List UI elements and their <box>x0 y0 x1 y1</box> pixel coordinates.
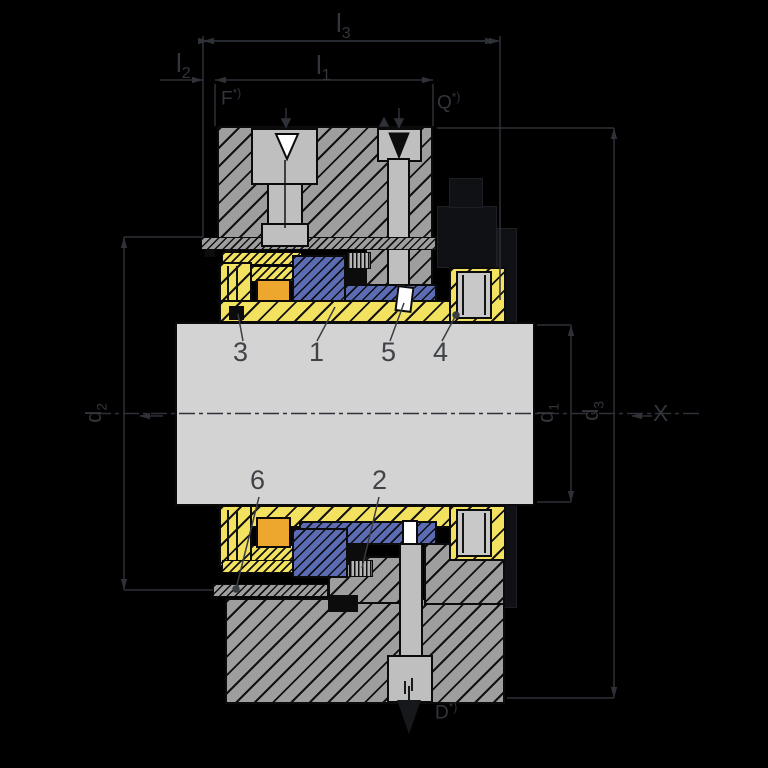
collar-screw-lower-l1 <box>462 513 464 553</box>
plate-line-lower-1 <box>227 510 229 562</box>
rotating-ring-lower <box>292 528 348 578</box>
dim-label-d3: d3 <box>580 401 606 421</box>
collar-screw-upper-l2 <box>484 275 486 315</box>
quench-port-flange <box>377 128 422 162</box>
part-label-2: 2 <box>372 467 387 494</box>
dim-label-l3: l3 <box>336 10 351 41</box>
drain-flange <box>387 655 433 703</box>
technical-drawing: l3 l2 l1 F*) Q*) D*) d2 d1 d3 X 3 1 5 4 … <box>0 0 768 768</box>
dim-label-l2: l2 <box>176 50 191 81</box>
housing-silhouette-upper-step <box>449 178 483 208</box>
spring-housing-cover-lower <box>222 560 302 573</box>
flow-arrows <box>282 108 403 127</box>
dim-label-l1: l1 <box>316 52 331 83</box>
set-screw-lower <box>349 560 373 577</box>
quench-port-tube <box>387 158 410 298</box>
flush-port-base <box>261 223 309 247</box>
flush-port-bore <box>251 128 318 185</box>
rotating-ring-upper <box>292 255 346 305</box>
wedge-upper <box>394 285 414 313</box>
part-label-6: 6 <box>250 467 265 494</box>
collar-screw-lower-l2 <box>484 513 486 553</box>
part-label-3: 3 <box>233 339 248 366</box>
gasket-step-lower <box>328 595 358 612</box>
housing-silhouette-upper <box>437 206 497 268</box>
view-label-x: X <box>653 402 668 425</box>
port-label-quench: Q*) <box>437 92 460 112</box>
oring-upper <box>229 306 244 320</box>
gland-gasket-lower <box>213 584 328 597</box>
spring-lower <box>256 517 291 548</box>
set-screw-upper <box>347 252 371 269</box>
dim-label-d2: d2 <box>83 403 109 423</box>
plate-line-lower-2 <box>236 510 238 562</box>
drain-tube <box>399 543 423 660</box>
part-label-4: 4 <box>433 339 448 366</box>
port-label-flush: F*) <box>221 88 241 108</box>
shaft <box>175 322 535 506</box>
housing-lower-main <box>225 598 505 704</box>
part-label-1: 1 <box>309 339 324 366</box>
collar-screw-upper-l1 <box>462 275 464 315</box>
part-label-5: 5 <box>381 339 396 366</box>
cavity-upper <box>344 266 366 286</box>
port-label-drain: D*) <box>435 702 457 722</box>
dim-label-d1: d1 <box>535 403 561 423</box>
gasket-tab-upper-1 <box>205 249 215 257</box>
